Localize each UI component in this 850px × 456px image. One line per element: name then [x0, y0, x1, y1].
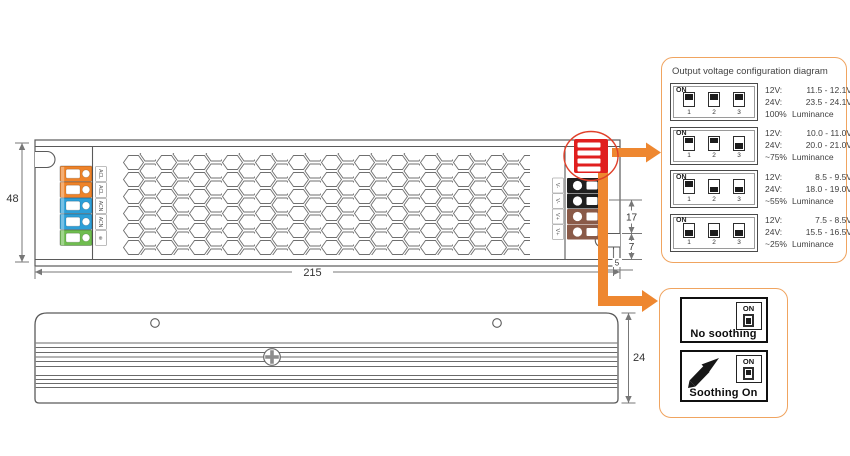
dip-switch-handle [708, 223, 720, 238]
soothing-on-box: ON Soothing On [680, 350, 768, 402]
dip-switch-3: 3 [733, 223, 745, 248]
dip-switch-number: 3 [737, 196, 741, 203]
input-label: ACL [97, 185, 103, 195]
mounting-hole-left [151, 319, 160, 328]
dip-switch-number: 3 [737, 109, 741, 116]
dip-switch-2: 2 [708, 223, 720, 248]
arrow-elbow [598, 296, 642, 306]
dip-switch-3: 3 [733, 179, 745, 204]
dimension-48: 48 [6, 143, 29, 262]
output-label: V- [554, 198, 560, 203]
dip-switch-3: 3 [733, 92, 745, 117]
arrow-down-shaft [598, 171, 608, 306]
dim-24-label: 24 [633, 352, 645, 364]
dip-switch-number: 2 [712, 196, 716, 203]
output-voltage-config-panel: Output voltage configuration diagram ON … [661, 57, 847, 263]
ventilation-mesh [123, 153, 530, 255]
luminance-line: ~25%Luminance [765, 239, 850, 250]
dip-switch-handle [733, 223, 745, 238]
dip-switch-number: 1 [687, 109, 691, 116]
voltage-info: 12V:11.5 - 12.1V 24V:23.5 - 24.1V 100%Lu… [765, 83, 850, 121]
voltage-info: 12V:7.5 - 8.5V 24V:15.5 - 16.5V ~25%Lumi… [765, 214, 850, 252]
mounting-slot-left [35, 152, 55, 168]
dim-17-label: 17 [626, 213, 638, 224]
dip-switch-number: 2 [712, 109, 716, 116]
input-label: ACL [97, 169, 103, 179]
soothing-on-label: Soothing On [682, 387, 766, 399]
voltage-line-24v: 24V:20.0 - 21.0V [765, 140, 850, 151]
voltage-line-12v: 12V:7.5 - 8.5V [765, 215, 850, 226]
technical-drawing-page: ACL ACL ACN ACN ⊕ V- V- V+ V+ [0, 0, 850, 456]
no-soothing-box: ON No soothing [680, 297, 768, 343]
launch-arrow-icon [688, 358, 720, 388]
voltage-line-24v: 24V:18.0 - 19.0V [765, 184, 850, 195]
config-rows: ON 1 2 3 12V:11.5 - 12.1V 24V:23.5 - 24.… [670, 83, 838, 252]
dip-switch-number: 2 [712, 239, 716, 246]
config-row-25: ON 1 2 3 12V:7.5 - 8.5V 24V:15.5 - 16.5V… [670, 214, 838, 252]
input-terminal-block [60, 166, 92, 246]
dim-height-label: 48 [6, 193, 18, 205]
no-soothing-label: No soothing [682, 328, 766, 340]
config-panel-title: Output voltage configuration diagram [672, 66, 838, 77]
voltage-line-12v: 12V:8.5 - 9.5V [765, 172, 850, 183]
voltage-line-24v: 24V:23.5 - 24.1V [765, 97, 850, 108]
dip-switch-number: 1 [687, 196, 691, 203]
dimension-24: 24 [622, 313, 648, 403]
terminal-highlight [61, 167, 64, 245]
config-row-55: ON 1 2 3 12V:8.5 - 9.5V 24V:18.0 - 19.0V… [670, 170, 838, 208]
dip-switch-2: 2 [708, 136, 720, 161]
config-row-100: ON 1 2 3 12V:11.5 - 12.1V 24V:23.5 - 24.… [670, 83, 838, 121]
arrow-to-config-head [646, 143, 661, 163]
dip-switch-handle [733, 179, 745, 194]
dim-7-label: 7 [629, 242, 635, 253]
output-label: V+ [554, 213, 560, 220]
input-label: ⊕ [97, 236, 103, 240]
dip-switch-number: 1 [687, 239, 691, 246]
top-view [35, 140, 620, 266]
dim-5-label: 5 [615, 259, 620, 268]
dip-switch-handle [708, 179, 720, 194]
dip-switch-box: ON 1 2 3 [670, 83, 758, 121]
dip-switch-2: 2 [708, 179, 720, 204]
dip-switch-1: 1 [683, 223, 695, 248]
dip-switch-3: 3 [733, 136, 745, 161]
on-label: ON [676, 174, 687, 182]
arrow-to-soothing-head [642, 290, 658, 312]
on-label: ON [676, 130, 687, 138]
dip-switch-1: 1 [683, 92, 695, 117]
dip-switch-1: 1 [683, 179, 695, 204]
dip-switch-handle [708, 136, 720, 151]
voltage-line-12v: 12V:10.0 - 11.0V [765, 128, 850, 139]
voltage-line-24v: 24V:15.5 - 16.5V [765, 227, 850, 238]
side-view-body [35, 313, 618, 403]
soothing-switch-handle [743, 367, 754, 380]
dip-switch-number: 2 [712, 152, 716, 159]
luminance-line: ~55%Luminance [765, 196, 850, 207]
output-label: V- [554, 183, 560, 188]
soothing-mode-panel: ON No soothing ON Soothing On [659, 288, 788, 418]
config-row-75: ON 1 2 3 12V:10.0 - 11.0V 24V:20.0 - 21.… [670, 127, 838, 165]
dimension-215: 215 [35, 266, 620, 279]
luminance-line: 100%Luminance [765, 109, 850, 120]
dimension-7: 7 [622, 234, 642, 260]
switch-assembly: ON [736, 355, 762, 383]
output-terminal-labels: V- V- V+ V+ [553, 178, 564, 240]
on-label: ON [676, 217, 687, 225]
dim-width-label: 215 [303, 267, 321, 279]
dip-switch-handle [708, 92, 720, 107]
dip-switch-number: 1 [687, 152, 691, 159]
dip-switch-1: 1 [683, 136, 695, 161]
dip-switch-2: 2 [708, 92, 720, 117]
voltage-info: 12V:10.0 - 11.0V 24V:20.0 - 21.0V ~75%Lu… [765, 127, 850, 165]
side-view [35, 313, 618, 403]
luminance-line: ~75%Luminance [765, 152, 850, 163]
switch-assembly: ON [736, 302, 762, 330]
mounting-hole-right [493, 319, 502, 328]
dip-switch-handle [733, 92, 745, 107]
voltage-line-12v: 12V:11.5 - 12.1V [765, 85, 850, 96]
dip-switch-box: ON 1 2 3 [670, 214, 758, 252]
on-label: ON [743, 357, 754, 366]
on-label: ON [743, 304, 754, 313]
dip-switch-handle [733, 136, 745, 151]
on-label: ON [676, 87, 687, 95]
soothing-switch-handle [743, 314, 754, 327]
dip-switch-box: ON 1 2 3 [670, 170, 758, 208]
dip-switch-number: 3 [737, 152, 741, 159]
dip-switch-box: ON 1 2 3 [670, 127, 758, 165]
input-label: ACN [97, 201, 103, 212]
output-label: V+ [554, 229, 560, 236]
voltage-info: 12V:8.5 - 9.5V 24V:18.0 - 19.0V ~55%Lumi… [765, 170, 850, 208]
input-label: ACN [97, 217, 103, 228]
dip-switch-number: 3 [737, 239, 741, 246]
input-terminal-labels: ACL ACL ACN ACN ⊕ [96, 167, 107, 246]
